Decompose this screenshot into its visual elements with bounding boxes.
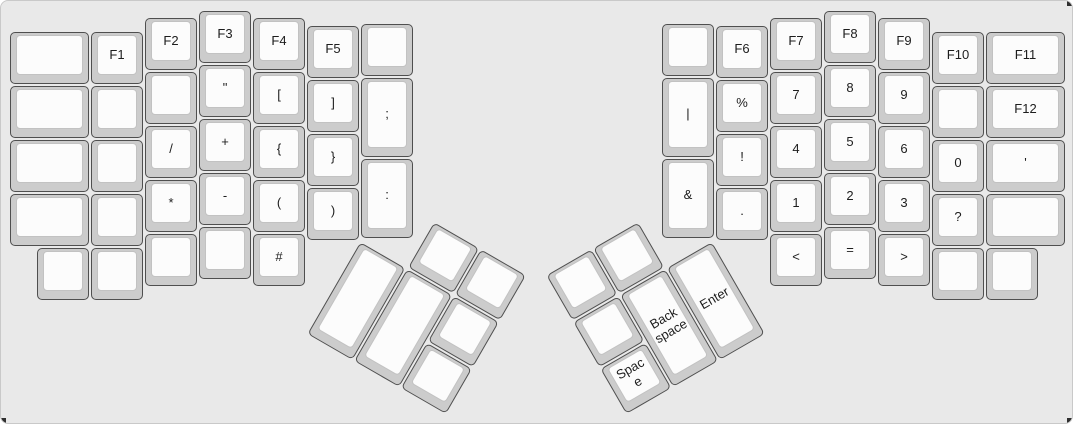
keycap-base: F9 [878, 18, 930, 70]
key-label: > [899, 250, 909, 265]
keycap-base [37, 248, 89, 300]
key-label: F1 [108, 48, 125, 63]
keycap-top [600, 228, 655, 283]
key-label: . [739, 204, 745, 219]
keycap-base [10, 32, 89, 84]
key-label: ) [330, 204, 336, 219]
key-blank[interactable] [90, 193, 144, 247]
keycap-base: / [145, 126, 197, 178]
key-label: F10 [946, 48, 970, 63]
keycap-top [992, 251, 1032, 291]
key-label: 1 [791, 196, 800, 211]
key-blank[interactable] [90, 247, 144, 301]
key-label: 2 [845, 189, 854, 204]
key-ampersand[interactable]: & [661, 158, 715, 239]
key-pipe[interactable]: | [661, 77, 715, 158]
keycap-base: F2 [145, 18, 197, 70]
key-f6[interactable]: F6 [715, 25, 769, 79]
keycap-top: & [668, 162, 708, 229]
keycap-top: . [722, 191, 762, 231]
key-num-1[interactable]: 1 [769, 179, 823, 233]
key-label: : [384, 188, 390, 203]
keycap-base: : [361, 159, 413, 238]
keycap-top: : [367, 162, 407, 229]
key-label: F11 [1014, 48, 1037, 63]
key-label: F6 [733, 42, 750, 57]
keycap-top [16, 197, 83, 237]
keycap-base: F5 [307, 26, 359, 78]
keycap-base [986, 194, 1065, 246]
key-f1[interactable]: F1 [90, 31, 144, 85]
keycap-top [465, 255, 520, 310]
key-f5[interactable]: F5 [306, 25, 360, 79]
key-label: * [167, 196, 174, 211]
key-minus[interactable]: - [198, 172, 252, 226]
keycap-top: [ [259, 75, 299, 115]
keycap-top: } [313, 137, 353, 177]
keycap-top [16, 35, 83, 75]
key-label: | [685, 107, 690, 122]
corner-mark-bottom-left [1, 418, 6, 423]
key-blank[interactable] [9, 139, 90, 193]
keycap-top: / [151, 129, 191, 169]
keycap-base: & [662, 159, 714, 238]
key-label: 6 [899, 142, 908, 157]
keycap-top: ' [992, 143, 1059, 183]
key-label [357, 298, 359, 299]
key-paren-close[interactable]: ) [306, 187, 360, 241]
key-label [607, 329, 609, 330]
keycap-top: 5 [830, 122, 870, 162]
key-label: ] [330, 96, 336, 111]
key-label: Back space [644, 303, 691, 347]
key-num-6[interactable]: 6 [877, 125, 931, 179]
key-hash[interactable]: # [252, 233, 306, 287]
keycap-base: F1 [91, 32, 143, 84]
keycap-base: F7 [770, 18, 822, 70]
keycap-base: F6 [716, 26, 768, 78]
keycap-base: | [662, 78, 714, 157]
keycap-base: ; [361, 78, 413, 157]
key-blank[interactable] [90, 139, 144, 193]
keycap-base: ! [716, 134, 768, 186]
key-label [464, 329, 466, 330]
keycap-base [10, 140, 89, 192]
keycap-top: ( [259, 183, 299, 223]
keycap-top: + [205, 122, 245, 162]
keycap-top: ? [938, 197, 978, 237]
key-num-2[interactable]: 2 [823, 172, 877, 226]
key-label: F5 [324, 42, 341, 57]
key-less-than[interactable]: < [769, 233, 823, 287]
keycap-top: F3 [205, 14, 245, 54]
key-label: ( [276, 196, 282, 211]
key-num-5[interactable]: 5 [823, 118, 877, 172]
key-f7[interactable]: F7 [769, 17, 823, 71]
key-exclamation[interactable]: ! [715, 133, 769, 187]
keycap-base: > [878, 234, 930, 286]
key-equals[interactable]: = [823, 226, 877, 280]
key-greater-than[interactable]: > [877, 233, 931, 287]
key-f4[interactable]: F4 [252, 17, 306, 71]
keycap-base: 8 [824, 65, 876, 117]
keycap-base: F3 [199, 11, 251, 63]
key-label [404, 325, 406, 326]
key-asterisk[interactable]: * [144, 179, 198, 233]
key-label: / [168, 142, 174, 157]
key-blank[interactable] [9, 85, 90, 139]
key-f8[interactable]: F8 [823, 10, 877, 64]
keycap-top [367, 27, 407, 67]
key-question[interactable]: ? [931, 193, 985, 247]
keycap-top: - [205, 176, 245, 216]
key-f10[interactable]: F10 [931, 31, 985, 85]
key-label: } [330, 150, 336, 165]
key-f12[interactable]: F12 [985, 85, 1066, 139]
key-label [580, 282, 582, 283]
keycap-top: # [259, 237, 299, 277]
key-f3[interactable]: F3 [198, 10, 252, 64]
key-slash[interactable]: / [144, 125, 198, 179]
key-label [626, 255, 628, 256]
key-label: 7 [791, 88, 800, 103]
keycap-top: F10 [938, 35, 978, 75]
key-label: 8 [845, 81, 854, 96]
keycap-base: % [716, 80, 768, 132]
keycap-top: F8 [830, 14, 870, 54]
keycap-base [361, 24, 413, 76]
keycap-top [992, 197, 1059, 237]
key-semicolon[interactable]: ; [360, 77, 414, 158]
key-blank[interactable] [661, 23, 715, 77]
keycap-base: F12 [986, 86, 1065, 138]
key-label: = [845, 243, 855, 258]
key-num-8[interactable]: 8 [823, 64, 877, 118]
keycap-base: 6 [878, 126, 930, 178]
keycap-base: - [199, 173, 251, 225]
keycap-base: = [824, 227, 876, 279]
keycap-top: F9 [884, 21, 924, 61]
key-blank[interactable] [36, 247, 90, 301]
corner-mark-bottom-right [1067, 418, 1072, 423]
key-blank[interactable] [360, 23, 414, 77]
key-bracket-open[interactable]: [ [252, 71, 306, 125]
keycap-top: F2 [151, 21, 191, 61]
keycap-top: 9 [884, 75, 924, 115]
keycap-base: " [199, 65, 251, 117]
keycap-top: F6 [722, 29, 762, 69]
keycap-top: 2 [830, 176, 870, 216]
key-blank[interactable] [144, 71, 198, 125]
key-label [444, 255, 446, 256]
keycap-top: ) [313, 191, 353, 231]
key-blank[interactable] [90, 85, 144, 139]
keycap-base: F10 [932, 32, 984, 84]
key-label: & [683, 188, 694, 203]
keycap-base: + [199, 119, 251, 171]
key-label: { [276, 142, 282, 157]
keycap-top: ! [722, 137, 762, 177]
keycap-top: F4 [259, 21, 299, 61]
keycap-top: > [884, 237, 924, 277]
key-brace-open[interactable]: { [252, 125, 306, 179]
keycap-base: F8 [824, 11, 876, 63]
keycap-base: F4 [253, 18, 305, 70]
key-label: 5 [845, 135, 854, 150]
keycap-top [43, 251, 83, 291]
keycap-top: ] [313, 83, 353, 123]
keycap-base [91, 248, 143, 300]
key-label: ; [384, 107, 390, 122]
keycap-top: " [205, 68, 245, 108]
keycap-base [932, 86, 984, 138]
keycap-base: [ [253, 72, 305, 124]
keycap-top [97, 143, 137, 183]
key-label: F4 [270, 34, 287, 49]
keycap-base [145, 234, 197, 286]
key-label: ' [1023, 156, 1027, 171]
key-blank[interactable] [985, 247, 1039, 301]
keycap-base: ] [307, 80, 359, 132]
key-num-9[interactable]: 9 [877, 71, 931, 125]
key-apostrophe[interactable]: ' [985, 139, 1066, 193]
key-blank[interactable] [9, 193, 90, 247]
keycap-top [938, 251, 978, 291]
keycap-base: 7 [770, 72, 822, 124]
key-f2[interactable]: F2 [144, 17, 198, 71]
key-label: Enter [696, 284, 732, 313]
key-label: F12 [1013, 102, 1037, 117]
key-paren-open[interactable]: ( [252, 179, 306, 233]
key-label: 3 [899, 196, 908, 211]
key-label: F8 [841, 27, 858, 42]
key-label: + [220, 135, 230, 150]
keycap-top [151, 237, 191, 277]
keycap-top: 7 [776, 75, 816, 115]
keycap-top: F5 [313, 29, 353, 69]
keycap-top [668, 27, 708, 67]
key-label: # [274, 250, 283, 265]
keycap-base [10, 86, 89, 138]
keycap-top: % [722, 83, 762, 123]
key-blank[interactable] [198, 226, 252, 280]
key-label [437, 375, 439, 376]
key-blank[interactable] [144, 233, 198, 287]
keycap-base [145, 72, 197, 124]
key-colon[interactable]: : [360, 158, 414, 239]
key-num-7[interactable]: 7 [769, 71, 823, 125]
key-label: Space [611, 354, 658, 398]
keycap-top [16, 143, 83, 183]
key-num-4[interactable]: 4 [769, 125, 823, 179]
keycap-top: F1 [97, 35, 137, 75]
keycap-base [91, 194, 143, 246]
key-label: [ [276, 88, 282, 103]
keycap-base: 1 [770, 180, 822, 232]
key-label: F7 [787, 34, 804, 49]
keycap-base: 4 [770, 126, 822, 178]
keycap-base [662, 24, 714, 76]
keycap-top: | [668, 81, 708, 148]
key-period[interactable]: . [715, 187, 769, 241]
keycap-base [91, 86, 143, 138]
keycap-base [986, 248, 1038, 300]
key-blank[interactable] [931, 247, 985, 301]
corner-mark-top-right [1067, 1, 1072, 6]
key-brace-close[interactable]: } [306, 133, 360, 187]
key-f9[interactable]: F9 [877, 17, 931, 71]
keycap-top: * [151, 183, 191, 223]
keycap-base: . [716, 188, 768, 240]
keycap-base [199, 227, 251, 279]
keycap-top: 0 [938, 143, 978, 183]
keycap-base: ) [307, 188, 359, 240]
keycap-top: 3 [884, 183, 924, 223]
key-f11[interactable]: F11 [985, 31, 1066, 85]
key-label: F2 [162, 34, 179, 49]
key-label: 4 [791, 142, 800, 157]
keycap-base: # [253, 234, 305, 286]
keycap-top: 8 [830, 68, 870, 108]
keycap-top: < [776, 237, 816, 277]
keycap-top: F12 [992, 89, 1059, 129]
key-label: " [222, 81, 229, 96]
keycap-base: F11 [986, 32, 1065, 84]
keycap-top: 4 [776, 129, 816, 169]
keycap-top [97, 251, 137, 291]
keycap-base: 0 [932, 140, 984, 192]
key-label: ! [739, 150, 745, 165]
key-label: % [735, 96, 749, 111]
keycap-base [10, 194, 89, 246]
keycap-top [151, 75, 191, 115]
keycap-top [16, 89, 83, 129]
key-num-3[interactable]: 3 [877, 179, 931, 233]
keycap-base: { [253, 126, 305, 178]
keycap-top: F11 [992, 35, 1059, 75]
keycap-top: 1 [776, 183, 816, 223]
keycap-base: } [307, 134, 359, 186]
keyboard-canvas: F1F2/*F3"+-F4[{(#F5]});:|&F6%!.F7741<F88… [0, 0, 1073, 424]
keycap-top [97, 89, 137, 129]
keycap-base: 3 [878, 180, 930, 232]
keycap-top: ; [367, 81, 407, 148]
keycap-top: { [259, 129, 299, 169]
keycap-top [205, 230, 245, 270]
key-percent[interactable]: % [715, 79, 769, 133]
key-blank[interactable] [9, 31, 90, 85]
key-label: < [791, 250, 801, 265]
key-double-quote[interactable]: " [198, 64, 252, 118]
key-label: 0 [953, 156, 962, 171]
keycap-base: ' [986, 140, 1065, 192]
keycap-top: = [830, 230, 870, 270]
keycap-base: ? [932, 194, 984, 246]
key-plus[interactable]: + [198, 118, 252, 172]
keycap-base: 2 [824, 173, 876, 225]
key-blank[interactable] [931, 85, 985, 139]
keycap-base: * [145, 180, 197, 232]
keycap-base: 5 [824, 119, 876, 171]
key-bracket-close[interactable]: ] [306, 79, 360, 133]
key-blank[interactable] [985, 193, 1066, 247]
keycap-base: ( [253, 180, 305, 232]
keycap-base: 9 [878, 72, 930, 124]
keycap-top [97, 197, 137, 237]
key-label: - [222, 189, 228, 204]
keycap-top: F7 [776, 21, 816, 61]
key-label: ? [953, 210, 962, 225]
key-label: F9 [895, 34, 912, 49]
key-label: F3 [216, 27, 233, 42]
key-num-0[interactable]: 0 [931, 139, 985, 193]
keycap-top [938, 89, 978, 129]
keycap-top: 6 [884, 129, 924, 169]
key-label [491, 282, 493, 283]
keycap-top [553, 255, 608, 310]
key-label: 9 [899, 88, 908, 103]
keycap-base [91, 140, 143, 192]
keycap-base [932, 248, 984, 300]
keycap-base: < [770, 234, 822, 286]
